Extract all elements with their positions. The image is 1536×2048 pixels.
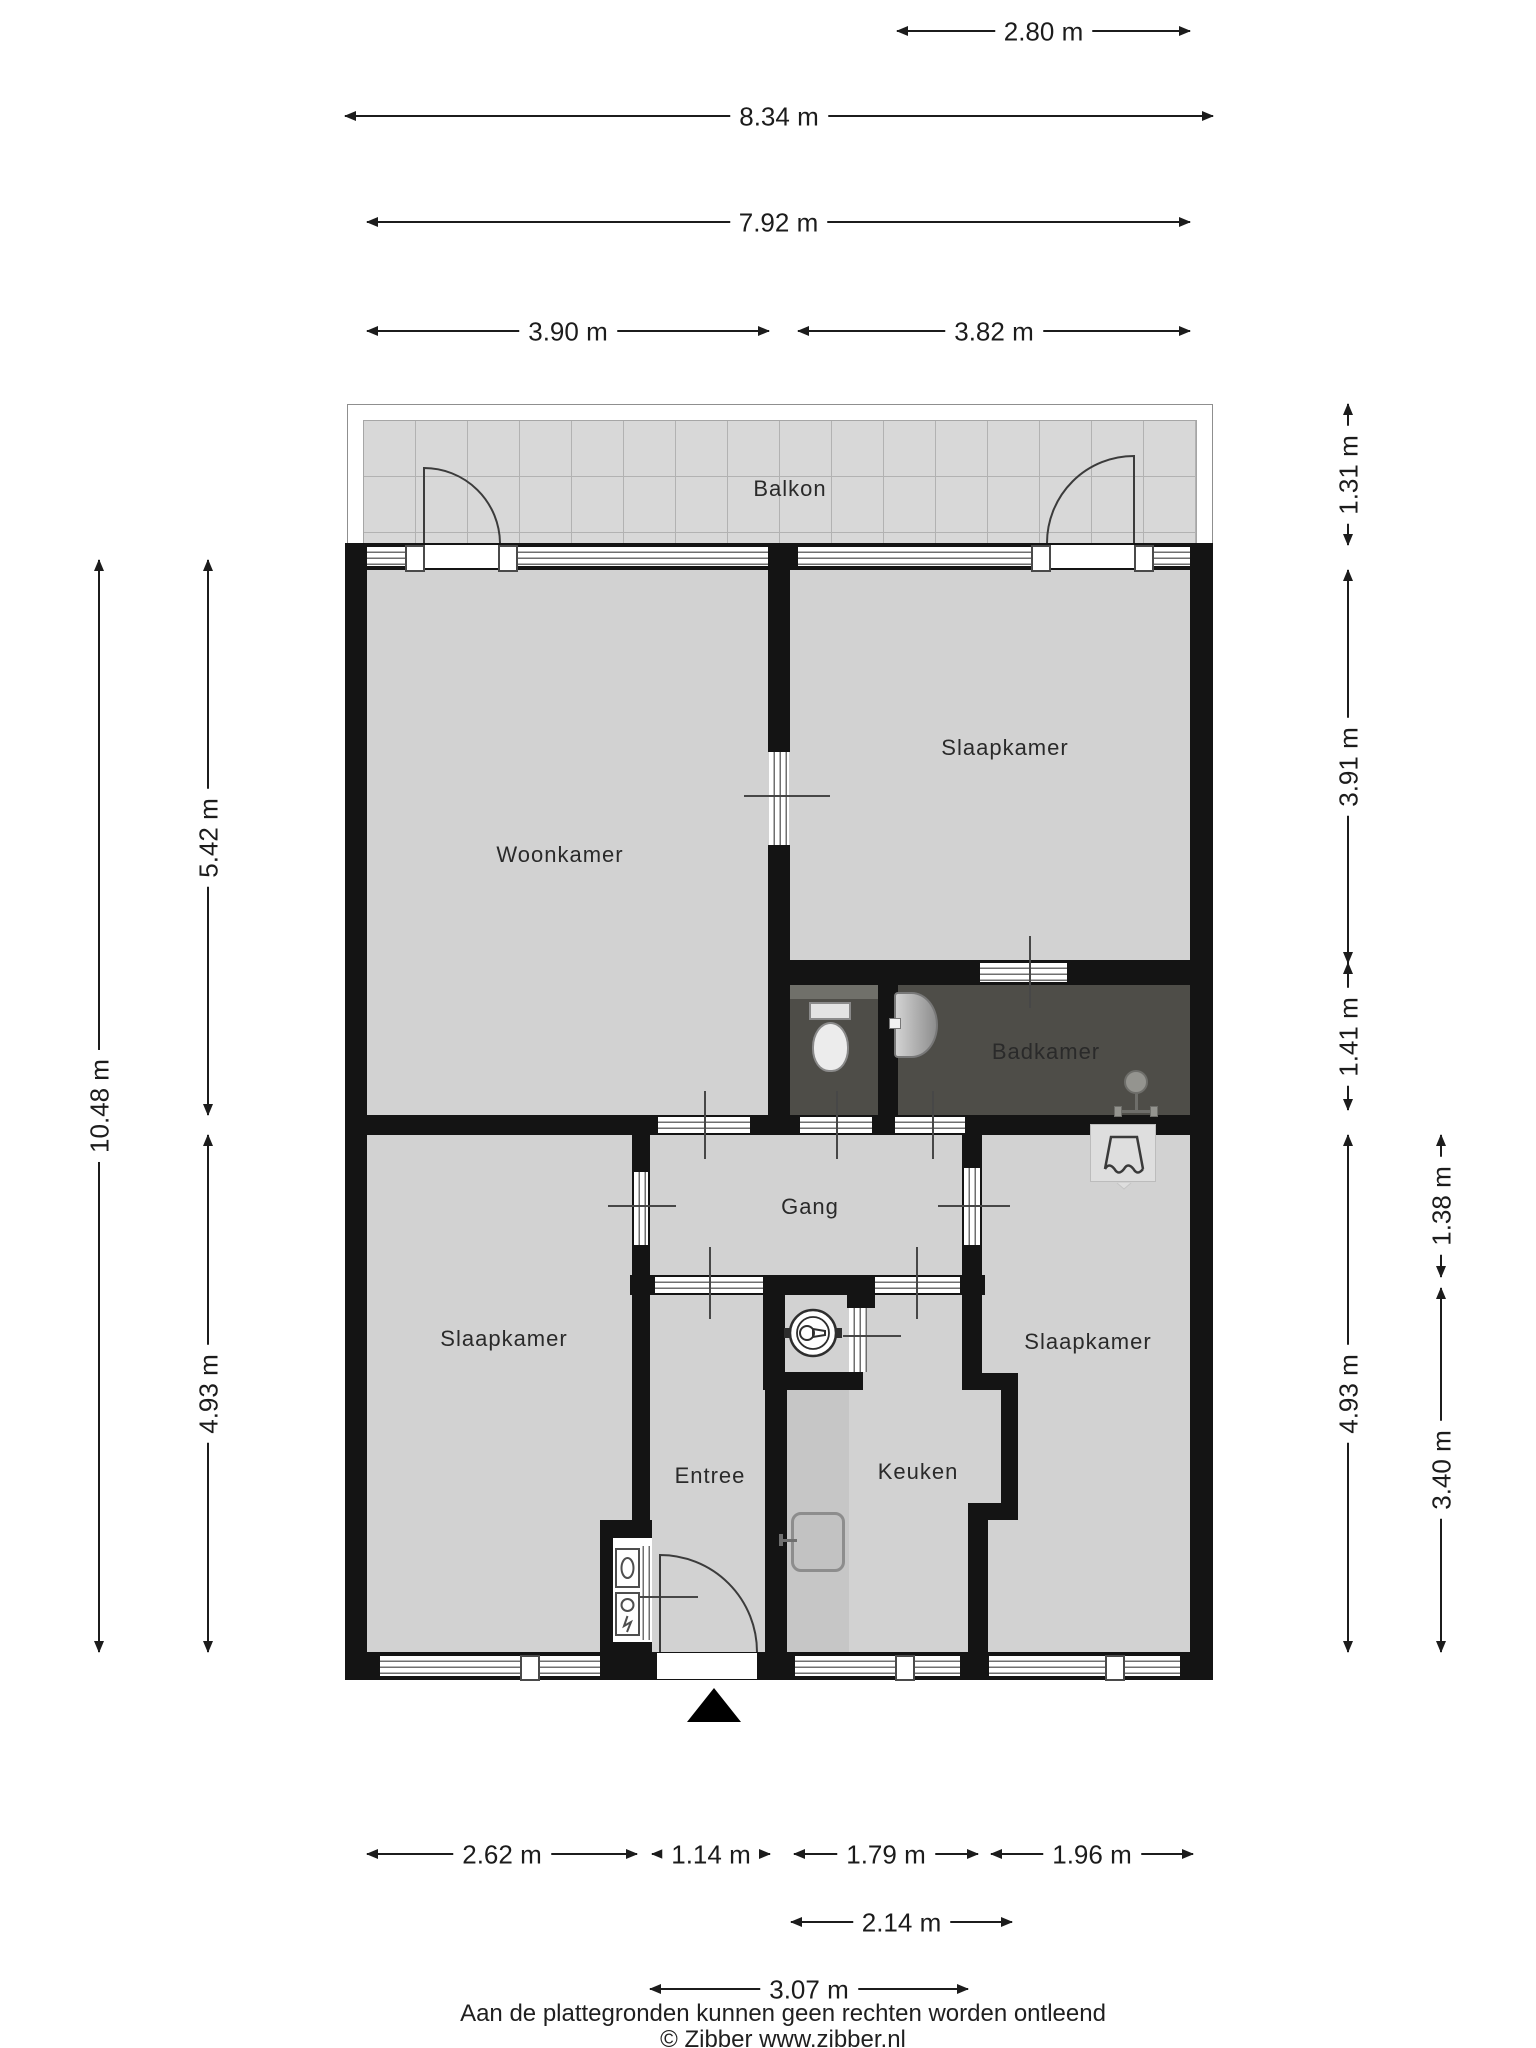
wardrobe-icon [1090, 1124, 1156, 1182]
kitchen-faucet-icon [781, 1539, 797, 1542]
faucet-icon [889, 1018, 901, 1029]
shower-handle [1150, 1106, 1158, 1117]
meter-icon [615, 1592, 640, 1636]
dimension-line: 1.96 m [991, 1853, 1193, 1855]
dimension-line: 4.93 m [207, 1135, 209, 1652]
dimension-line: 2.80 m [897, 30, 1190, 32]
dimension-line: 3.07 m [650, 1988, 968, 1990]
dimension-label: 1.31 m [1333, 426, 1366, 524]
dimension-label: 2.62 m [453, 1839, 551, 1872]
dimension-label: 3.90 m [519, 316, 617, 349]
dimension-line: 1.41 m [1347, 963, 1349, 1110]
floorplan-page: Balkon Woonkamer Slaapkamer Badkamer Gan… [0, 0, 1536, 2048]
dimension-label: 10.48 m [84, 1050, 117, 1162]
dimension-label: 8.34 m [730, 101, 828, 134]
dimension-label: 4.93 m [193, 1345, 226, 1443]
footer-copyright: © Zibber www.zibber.nl [660, 2026, 906, 2048]
room-label-slaapkamer-left: Slaapkamer [440, 1326, 567, 1352]
dimension-label: 1.14 m [662, 1839, 760, 1872]
dimension-line: 2.62 m [367, 1853, 637, 1855]
entrance-arrow-icon [687, 1688, 741, 1722]
dimension-label: 1.38 m [1426, 1157, 1459, 1255]
dimension-line: 3.82 m [798, 330, 1190, 332]
dimension-label: 1.41 m [1333, 988, 1366, 1086]
shower-icon [1124, 1070, 1148, 1094]
dimension-line: 1.14 m [652, 1853, 770, 1855]
dimension-label: 1.79 m [837, 1839, 935, 1872]
footer-disclaimer: Aan de plattegronden kunnen geen rechten… [460, 2000, 1106, 2028]
dimension-label: 1.96 m [1043, 1839, 1141, 1872]
toilet-icon [809, 1002, 851, 1020]
dimension-label: 2.80 m [995, 16, 1093, 49]
dimension-line: 3.91 m [1347, 570, 1349, 963]
shower-handle [1114, 1106, 1122, 1117]
dimension-label: 4.93 m [1333, 1345, 1366, 1443]
room-label-balkon: Balkon [753, 476, 826, 502]
toilet-bowl-icon [812, 1022, 849, 1072]
room-label-entree: Entree [675, 1463, 746, 1489]
dimension-line: 3.90 m [367, 330, 769, 332]
room-label-keuken: Keuken [878, 1459, 959, 1485]
room-label-gang: Gang [781, 1194, 839, 1220]
room-label-slaapkamer-top: Slaapkamer [941, 735, 1068, 761]
dimension-line: 1.79 m [794, 1853, 978, 1855]
dimension-line: 2.14 m [791, 1921, 1012, 1923]
dimension-line: 4.93 m [1347, 1135, 1349, 1652]
dimension-line: 5.42 m [207, 560, 209, 1115]
dimension-label: 3.91 m [1333, 718, 1366, 816]
room-label-woonkamer: Woonkamer [496, 842, 623, 868]
dimension-label: 5.42 m [193, 789, 226, 887]
dimension-label: 3.82 m [945, 316, 1043, 349]
door-swing-arcs [0, 0, 1536, 2048]
dimension-label: 2.14 m [853, 1907, 951, 1940]
dimension-line: 1.31 m [1347, 404, 1349, 545]
boiler-icon [787, 1307, 839, 1359]
dimension-line: 3.40 m [1440, 1288, 1442, 1652]
dimension-line: 1.38 m [1440, 1135, 1442, 1277]
kitchen-sink-icon [791, 1512, 845, 1572]
dimension-label: 3.40 m [1426, 1421, 1459, 1519]
meter-icon [615, 1548, 640, 1588]
kitchen-faucet-icon [779, 1534, 783, 1546]
room-label-badkamer: Badkamer [992, 1039, 1100, 1065]
dimension-line: 8.34 m [345, 115, 1213, 117]
room-label-slaapkamer-right: Slaapkamer [1024, 1329, 1151, 1355]
dimension-line: 7.92 m [367, 221, 1190, 223]
dimension-line: 10.48 m [98, 560, 100, 1652]
dimension-label: 7.92 m [730, 207, 828, 240]
